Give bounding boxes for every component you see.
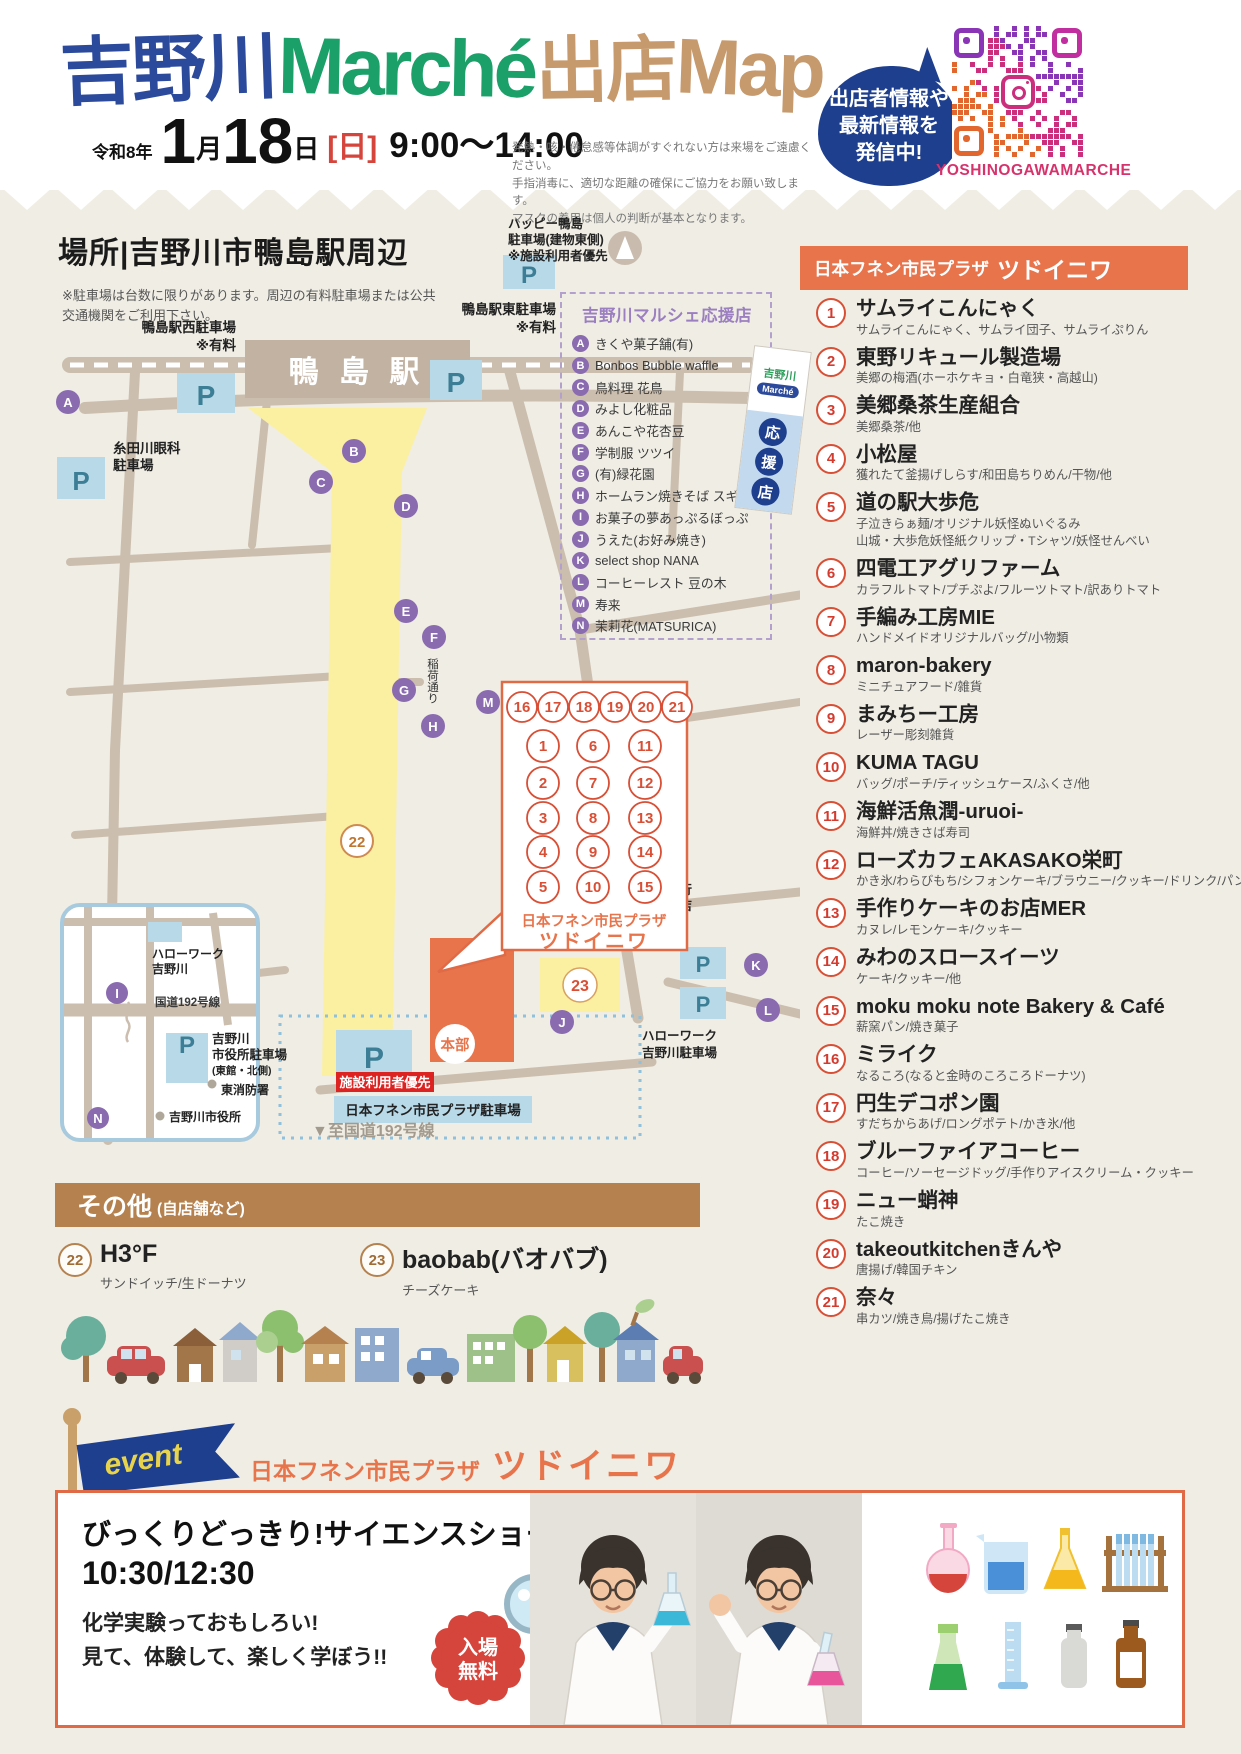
svg-text:糸田川眼科: 糸田川眼科 (113, 440, 181, 456)
svg-text:I: I (115, 986, 119, 1001)
svg-text:※有料: ※有料 (516, 319, 557, 335)
store-letter-badge: H (572, 487, 589, 504)
svg-text:5: 5 (539, 879, 547, 896)
vendor-name: 東野リキュール製造場 (856, 345, 1202, 371)
vendor-item: 3 美郷桑茶生産組合 美郷桑茶/他 (800, 393, 1202, 436)
svg-text:入場: 入場 (458, 1636, 498, 1659)
vendor-item: 1 サムライこんにゃく サムライこんにゃく、サムライ団子、サムライぷりん (800, 296, 1202, 339)
store-name: select shop NANA (595, 553, 699, 568)
vendor-name: moku moku note Bakery & Café (856, 994, 1202, 1020)
store-name: baobab(バオバブ) (402, 1240, 608, 1276)
tree-icon (584, 1312, 620, 1382)
to-route-label: ▼至国道192号線 (312, 1121, 435, 1140)
svg-text:市役所駐車場: 市役所駐車場 (212, 1047, 288, 1062)
others-section-header: その他 (自店舗など) (55, 1183, 700, 1227)
event-description: 化学実験っておもしろい! 見て、体験して、楽しく学ぼう!! (82, 1607, 387, 1674)
store-name: 学制服 ツツイ (595, 443, 675, 462)
vendor-name: サムライこんにゃく (856, 296, 1202, 322)
vendor-number-badge: 16 (816, 1044, 846, 1074)
vendor-name: ニュー蛸神 (856, 1188, 1202, 1214)
vendor-products: 美郷の梅酒(ホーホケキョ・白竜狭・高越山) (856, 371, 1202, 387)
vendor-name: みわのスロースイーツ (856, 945, 1202, 971)
svg-text:8: 8 (589, 810, 597, 827)
svg-text:6: 6 (589, 738, 597, 755)
svg-text:日本フネン市民プラザ: 日本フネン市民プラザ (522, 912, 667, 930)
erlenmeyer-green-icon (929, 1624, 967, 1690)
store-name: お菓子の夢あっぷるぼっぷ (595, 508, 749, 527)
vendor-products: カラフルトマト/プチぷよ/フルーツトマト/訳ありトマト (856, 583, 1202, 599)
vendor-products: 串カツ/焼き鳥/揚げたこ焼き (856, 1312, 1202, 1328)
svg-text:東消防署: 東消防署 (221, 1082, 269, 1097)
svg-text:12: 12 (637, 775, 654, 792)
erlenmeyer-yellow-icon (1045, 1528, 1085, 1588)
svg-text:駐車場(建物東側): 駐車場(建物東側) (508, 232, 604, 247)
vendor-products: サムライこんにゃく、サムライ団子、サムライぷりん (856, 323, 1202, 339)
store-name: 鳥料理 花鳥 (595, 378, 663, 397)
support-store-item: A きくや菓子舗(有) (572, 333, 770, 355)
parking-icon: P (179, 1032, 195, 1059)
store-name: H3°F (100, 1240, 247, 1269)
vendor-item: 13 手作りケーキのお店MER カヌレ/レモンケーキ/クッキー (800, 896, 1202, 939)
tree-icon (513, 1315, 547, 1382)
vendor-products: 唐揚げ/韓国チキン (856, 1263, 1202, 1279)
store-name: きくや菓子舗(有) (595, 334, 693, 353)
svg-text:4: 4 (539, 844, 548, 861)
parking-icon: P (696, 952, 711, 977)
store-letter-badge: D (572, 400, 589, 417)
svg-text:11: 11 (637, 738, 653, 755)
free-admission-badge: 入場 無料 (428, 1608, 528, 1708)
vendor-item: 11 海鮮活魚潤-uruoi- 海鮮丼/焼きさば寿司 (800, 799, 1202, 842)
event-date: 令和8年 1 月 18 日 [日] 9:00〜14:00 (92, 112, 584, 171)
svg-text:D: D (401, 499, 410, 514)
vendor-number-badge: 4 (816, 444, 846, 474)
store-letter-badge: M (572, 596, 589, 613)
vendor-number-badge: 17 (816, 1093, 846, 1123)
town-illustration (55, 1288, 705, 1388)
parking-icon: P (72, 466, 89, 496)
store-name: みよし化粧品 (595, 399, 672, 418)
svg-text:国道192号線: 国道192号線 (155, 995, 221, 1009)
house-icon (301, 1326, 349, 1382)
vendor-number-badge: 19 (816, 1190, 846, 1220)
vendor-number-badge: 6 (816, 558, 846, 588)
north-arrow-icon (608, 231, 642, 265)
vendor-products: ミニチュアフード/雑貨 (856, 680, 1202, 696)
vendor-item: 2 東野リキュール製造場 美郷の梅酒(ホーホケキョ・白竜狭・高越山) (800, 345, 1202, 388)
vendor-products: 海鮮丼/焼きさば寿司 (856, 826, 1202, 842)
store-name: (有)緑花園 (595, 464, 655, 483)
vendor-item: 6 四電工アグリファーム カラフルトマト/プチぷよ/フルーツトマト/訳ありトマト (800, 556, 1202, 599)
title-part-jp: 吉野川 (59, 29, 277, 110)
svg-text:14: 14 (637, 844, 654, 861)
vendor-number-badge: 7 (816, 607, 846, 637)
round-flask-icon (927, 1523, 969, 1593)
svg-text:吉野川: 吉野川 (152, 961, 188, 976)
vendor-number-badge: 13 (816, 898, 846, 928)
store-letter-badge: E (572, 422, 589, 439)
vendor-products: 獲れたて釜揚げしらす/和田島ちりめん/干物/他 (856, 468, 1202, 484)
svg-text:ハローワーク: ハローワーク (152, 947, 224, 961)
svg-text:吉野川: 吉野川 (212, 1031, 250, 1046)
svg-text:E: E (402, 604, 411, 619)
svg-text:13: 13 (637, 810, 654, 827)
parking-note: ※駐車場は台数に限りがあります。周辺の有料駐車場または公共 交通機関をご利用下さ… (62, 286, 436, 326)
store-letter-badge: C (572, 379, 589, 396)
store-name: Bonbos Bubble waffle (595, 358, 719, 373)
vendor-products: バッグ/ポーチ/ティッシュケース/ふくさ/他 (856, 777, 1202, 793)
support-store-item: M 寿来 (572, 593, 770, 615)
qr-finder-icon (1052, 28, 1082, 58)
support-store-item: B Bonbos Bubble waffle (572, 355, 770, 377)
vendor-name: KUMA TAGU (856, 750, 1202, 776)
store-letter-badge: F (572, 444, 589, 461)
support-store-item: D みよし化粧品 (572, 398, 770, 420)
vendor-name: 道の駅大歩危 (856, 490, 1202, 516)
vendor-item: 20 takeoutkitchenきんや 唐揚げ/韓国チキン (800, 1237, 1202, 1280)
svg-text:G: G (399, 683, 409, 698)
instagram-account: YOSHINOGAWAMARCHE (936, 162, 1100, 180)
tree-icon (256, 1310, 304, 1382)
vendor-products: すだちからあげ/ロングポテト/かき氷/他 (856, 1117, 1202, 1133)
parking-icon: P (447, 367, 466, 398)
svg-text:J: J (558, 1015, 565, 1030)
priority-label: 施設利用者優先 (339, 1075, 430, 1090)
house-icon (543, 1326, 587, 1382)
vendor-name: 小松屋 (856, 442, 1202, 468)
event-showtimes: 10:30/12:30 (82, 1555, 255, 1592)
svg-text:ツドイニワ: ツドイニワ (539, 931, 649, 953)
vendor-name: まみちー工房 (856, 702, 1202, 728)
vendor-number-badge: 10 (816, 752, 846, 782)
vendor-name: 美郷桑茶生産組合 (856, 393, 1202, 419)
car-icon (407, 1348, 459, 1384)
vendor-item: 10 KUMA TAGU バッグ/ポーチ/ティッシュケース/ふくさ/他 (800, 750, 1202, 793)
support-store-title: 吉野川マルシェ応援店 (572, 302, 762, 326)
svg-text:B: B (349, 444, 358, 459)
svg-text:吉野川市役所: 吉野川市役所 (169, 1109, 241, 1124)
svg-text:21: 21 (669, 699, 686, 716)
flag-logo: 吉野川 (762, 364, 797, 384)
vendor-number-badge: 11 (816, 801, 846, 831)
vendor-name: maron-bakery (856, 653, 1202, 679)
svg-text:9: 9 (589, 844, 597, 861)
photo-scientist-1 (530, 1493, 696, 1725)
svg-text:吉野川駐車場: 吉野川駐車場 (642, 1045, 718, 1060)
svg-text:鴨島駅東駐車場: 鴨島駅東駐車場 (462, 301, 557, 317)
svg-text:※施設利用者優先: ※施設利用者優先 (508, 248, 608, 263)
support-store-item: C 鳥料理 花鳥 (572, 376, 770, 398)
parking-icon: P (197, 380, 216, 411)
qr-finder-icon (954, 126, 984, 156)
car-icon (663, 1346, 703, 1384)
weekday-badge: [日] (327, 122, 377, 171)
inari-street-label: 稲荷通り (426, 658, 439, 704)
support-store-item: L コーヒーレスト 豆の木 (572, 572, 770, 594)
title-part-map: Map (675, 26, 825, 109)
vendor-number-badge: 12 (816, 850, 846, 880)
store-letter-badge: L (572, 574, 589, 591)
svg-text:15: 15 (637, 879, 654, 896)
svg-text:M: M (483, 695, 494, 710)
vendor-item: 8 maron-bakery ミニチュアフード/雑貨 (800, 653, 1202, 696)
store-letter-badge: A (572, 335, 589, 352)
vendor-products: カヌレ/レモンケーキ/クッキー (856, 923, 1202, 939)
building-icon (467, 1334, 515, 1382)
vendor-number-badge: 5 (816, 492, 846, 522)
support-store-item: N 茉莉花(MATSURICA) (572, 615, 770, 637)
svg-text:20: 20 (638, 699, 655, 716)
house-icon (219, 1322, 261, 1382)
science-icons (868, 1498, 1180, 1722)
vendor-products: コーヒー/ソーセージドッグ/手作りアイスクリーム・クッキー (856, 1166, 1202, 1182)
vendor-products: ハンドメイドオリジナルバッグ/小物類 (856, 631, 1202, 647)
support-store-item: J うえた(お好み焼き) (572, 528, 770, 550)
store-name: 寿来 (595, 595, 621, 614)
vendor-item: 15 moku moku note Bakery & Café 薪窯パン/焼き菓… (800, 994, 1202, 1037)
station-label: 鴨 島 駅 (289, 356, 426, 389)
vendor-number-badge: 9 (816, 704, 846, 734)
svg-text:※有料: ※有料 (196, 337, 237, 353)
vendor-number-badge: 3 (816, 395, 846, 425)
vendor-products: 薪窯パン/焼き菓子 (856, 1020, 1202, 1036)
svg-text:F: F (430, 630, 438, 645)
vendor-number-badge: 18 (816, 1141, 846, 1171)
other-store-22: 22 H3°F サンドイッチ/生ドーナツ (58, 1240, 247, 1292)
vendor-products: レーザー彫刻雑貨 (856, 728, 1202, 744)
store-letter-badge: G (572, 465, 589, 482)
svg-text:(東館・北側): (東館・北側) (212, 1064, 272, 1077)
vendor-name: ローズカフェAKASAKO栄町 (856, 848, 1202, 874)
vendor-list: 1 サムライこんにゃく サムライこんにゃく、サムライ団子、サムライぷりん 2 東… (800, 296, 1202, 1334)
vendor-item: 21 奈々 串カツ/焼き鳥/揚げたこ焼き (800, 1285, 1202, 1328)
vendor-name: 四電工アグリファーム (856, 556, 1202, 582)
svg-text:16: 16 (514, 699, 531, 716)
house-icon (173, 1328, 217, 1382)
svg-text:A: A (63, 395, 73, 410)
vendor-products: かき氷/わらびもち/シフォンケーキ/ブラウニー/クッキー/ドリンク/パンケーキ (856, 874, 1202, 890)
vendor-item: 17 円生デコポン園 すだちからあげ/ロングポテト/かき氷/他 (800, 1091, 1202, 1134)
vendor-number-badge: 14 (816, 947, 846, 977)
event-title: びっくりどっきり!サイエンスショー (82, 1511, 555, 1553)
vendor-item: 14 みわのスロースイーツ ケーキ/クッキー/他 (800, 945, 1202, 988)
vendor-products-2: 山城・大歩危妖怪紙クリップ・Tシャツ/妖怪せんべい (856, 534, 1202, 550)
svg-text:本部: 本部 (441, 1036, 470, 1054)
vendor-name: ミライク (856, 1042, 1202, 1068)
svg-text:10: 10 (585, 879, 602, 896)
svg-text:ハローワーク: ハローワーク (642, 1029, 717, 1043)
vendor-name: takeoutkitchenきんや (856, 1237, 1202, 1263)
svg-text:駐車場: 駐車場 (113, 457, 154, 473)
vendor-name: 円生デコポン園 (856, 1091, 1202, 1117)
store-letter-badge: J (572, 531, 589, 548)
graduated-cylinder-icon (998, 1622, 1028, 1689)
title-part-marche: Marché (277, 26, 534, 110)
map-section-title: 場所|吉野川市鴨島駅周辺 (58, 228, 408, 272)
vendor-item: 4 小松屋 獲れたて釜揚げしらす/和田島ちりめん/干物/他 (800, 442, 1202, 485)
plaza-section-header: 日本フネン市民プラザ ツドイニワ (800, 246, 1188, 290)
support-store-item: E あんこや花杏豆 (572, 420, 770, 442)
vendor-item: 12 ローズカフェAKASAKO栄町 かき氷/わらびもち/シフォンケーキ/ブラウ… (800, 848, 1202, 891)
store-number-badge: 22 (58, 1243, 92, 1277)
cityhall-inset-map: ハローワーク 吉野川 国道192号線 P 吉野川 市役所駐車場 (東館・北側) … (62, 905, 288, 1140)
vendor-products: 美郷桑茶/他 (856, 420, 1202, 436)
era-label: 令和8年 (92, 138, 152, 171)
svg-text:C: C (316, 475, 326, 490)
page-title: 吉野川Marché出店Map (60, 28, 823, 108)
parking-icon: P (364, 1042, 384, 1075)
svg-text:H: H (428, 719, 437, 734)
vendor-products: たこ焼き (856, 1215, 1202, 1231)
vendor-number-badge: 20 (816, 1239, 846, 1269)
svg-text:3: 3 (539, 810, 547, 827)
tree-icon (630, 1296, 656, 1326)
svg-text:22: 22 (349, 834, 366, 851)
store-letter-badge: I (572, 509, 589, 526)
qr-finder-icon (954, 28, 984, 58)
support-store-item: I お菓子の夢あっぷるぼっぷ (572, 507, 770, 529)
beaker-icon (976, 1534, 1028, 1594)
vendor-number-badge: 21 (816, 1287, 846, 1317)
event-pennant-icon: event (76, 1423, 240, 1495)
booth-layout: 1617 1819 2021 12 34 5 67 89 10 1112 131… (438, 682, 692, 972)
vendor-number-badge: 2 (816, 347, 846, 377)
instagram-icon (1001, 75, 1035, 109)
vendor-number-badge: 1 (816, 298, 846, 328)
building-icon (355, 1328, 399, 1382)
vendor-products: ケーキ/クッキー/他 (856, 972, 1202, 988)
vendor-item: 7 手編み工房MIE ハンドメイドオリジナルバッグ/小物類 (800, 605, 1202, 648)
car-icon (107, 1346, 165, 1384)
vendor-name: ブルーファイアコーヒー (856, 1139, 1202, 1165)
vendor-number-badge: 8 (816, 655, 846, 685)
parking-happy: P ハッピー鴨島 駐車場(建物東側) ※施設利用者優先 (503, 216, 608, 289)
parking-icon: P (696, 992, 711, 1017)
svg-text:ハッピー鴨島: ハッピー鴨島 (508, 216, 584, 231)
vendor-name: 手作りケーキのお店MER (856, 896, 1202, 922)
vendor-item: 9 まみちー工房 レーザー彫刻雑貨 (800, 702, 1202, 745)
store-letter-badge: K (572, 552, 589, 569)
store-letter-badge: B (572, 357, 589, 374)
event-venue: 日本フネン市民プラザ ツドイニワ (250, 1438, 682, 1489)
parking-itoda: P 糸田川眼科 駐車場 (57, 440, 181, 499)
vendor-name: 海鮮活魚潤-uruoi- (856, 799, 1202, 825)
store-name: コーヒーレスト 豆の木 (595, 573, 727, 592)
store-name: 茉莉花(MATSURICA) (595, 616, 716, 635)
tree-icon (61, 1316, 106, 1382)
title-part-shutten: 出店 (536, 34, 677, 108)
photo-scientist-2 (696, 1493, 862, 1725)
svg-text:L: L (764, 1003, 772, 1018)
store-number-badge: 23 (360, 1243, 394, 1277)
svg-text:K: K (751, 958, 761, 973)
svg-text:19: 19 (607, 699, 624, 716)
white-bottle-icon (1061, 1624, 1087, 1688)
vendor-number-badge: 15 (816, 996, 846, 1026)
svg-text:18: 18 (576, 699, 593, 716)
event-detail-box: びっくりどっきり!サイエンスショー 10:30/12:30 化学実験っておもしろ… (55, 1490, 1185, 1728)
vendor-item: 18 ブルーファイアコーヒー コーヒー/ソーセージドッグ/手作りアイスクリーム・… (800, 1139, 1202, 1182)
svg-text:17: 17 (545, 699, 562, 716)
parking-icon: P (521, 262, 537, 289)
brown-bottle-icon (1116, 1620, 1146, 1688)
store-name: うえた(お好み焼き) (595, 530, 706, 549)
svg-text:無料: 無料 (458, 1659, 498, 1683)
svg-text:日本フネン市民プラザ駐車場: 日本フネン市民プラザ駐車場 (345, 1102, 521, 1118)
svg-text:23: 23 (571, 978, 589, 995)
vendor-item: 5 道の駅大歩危 子泣きらぁ麺/オリジナル妖怪ぬいぐるみ 山城・大歩危妖怪紙クリ… (800, 490, 1202, 550)
flyer-page: 吉野川Marché出店Map 令和8年 1 月 18 日 [日] 9:00〜14… (0, 0, 1241, 1754)
vendor-item: 19 ニュー蛸神 たこ焼き (800, 1188, 1202, 1231)
vendor-name: 手編み工房MIE (856, 605, 1202, 631)
svg-text:2: 2 (539, 775, 547, 792)
qr-code (952, 26, 1084, 158)
vendor-item: 16 ミライク なるころ(なると金時のころころドーナツ) (800, 1042, 1202, 1085)
svg-text:7: 7 (589, 775, 597, 792)
svg-text:1: 1 (539, 738, 547, 755)
test-tube-rack-icon (1102, 1534, 1168, 1592)
support-store-item: K select shop NANA (572, 550, 770, 572)
store-letter-badge: N (572, 617, 589, 634)
vendor-products: 子泣きらぁ麺/オリジナル妖怪ぬいぐるみ (856, 517, 1202, 533)
svg-text:N: N (93, 1111, 102, 1126)
vendor-products: なるころ(なると金時のころころドーナツ) (856, 1069, 1202, 1085)
vendor-name: 奈々 (856, 1285, 1202, 1311)
store-name: あんこや花杏豆 (595, 421, 685, 440)
